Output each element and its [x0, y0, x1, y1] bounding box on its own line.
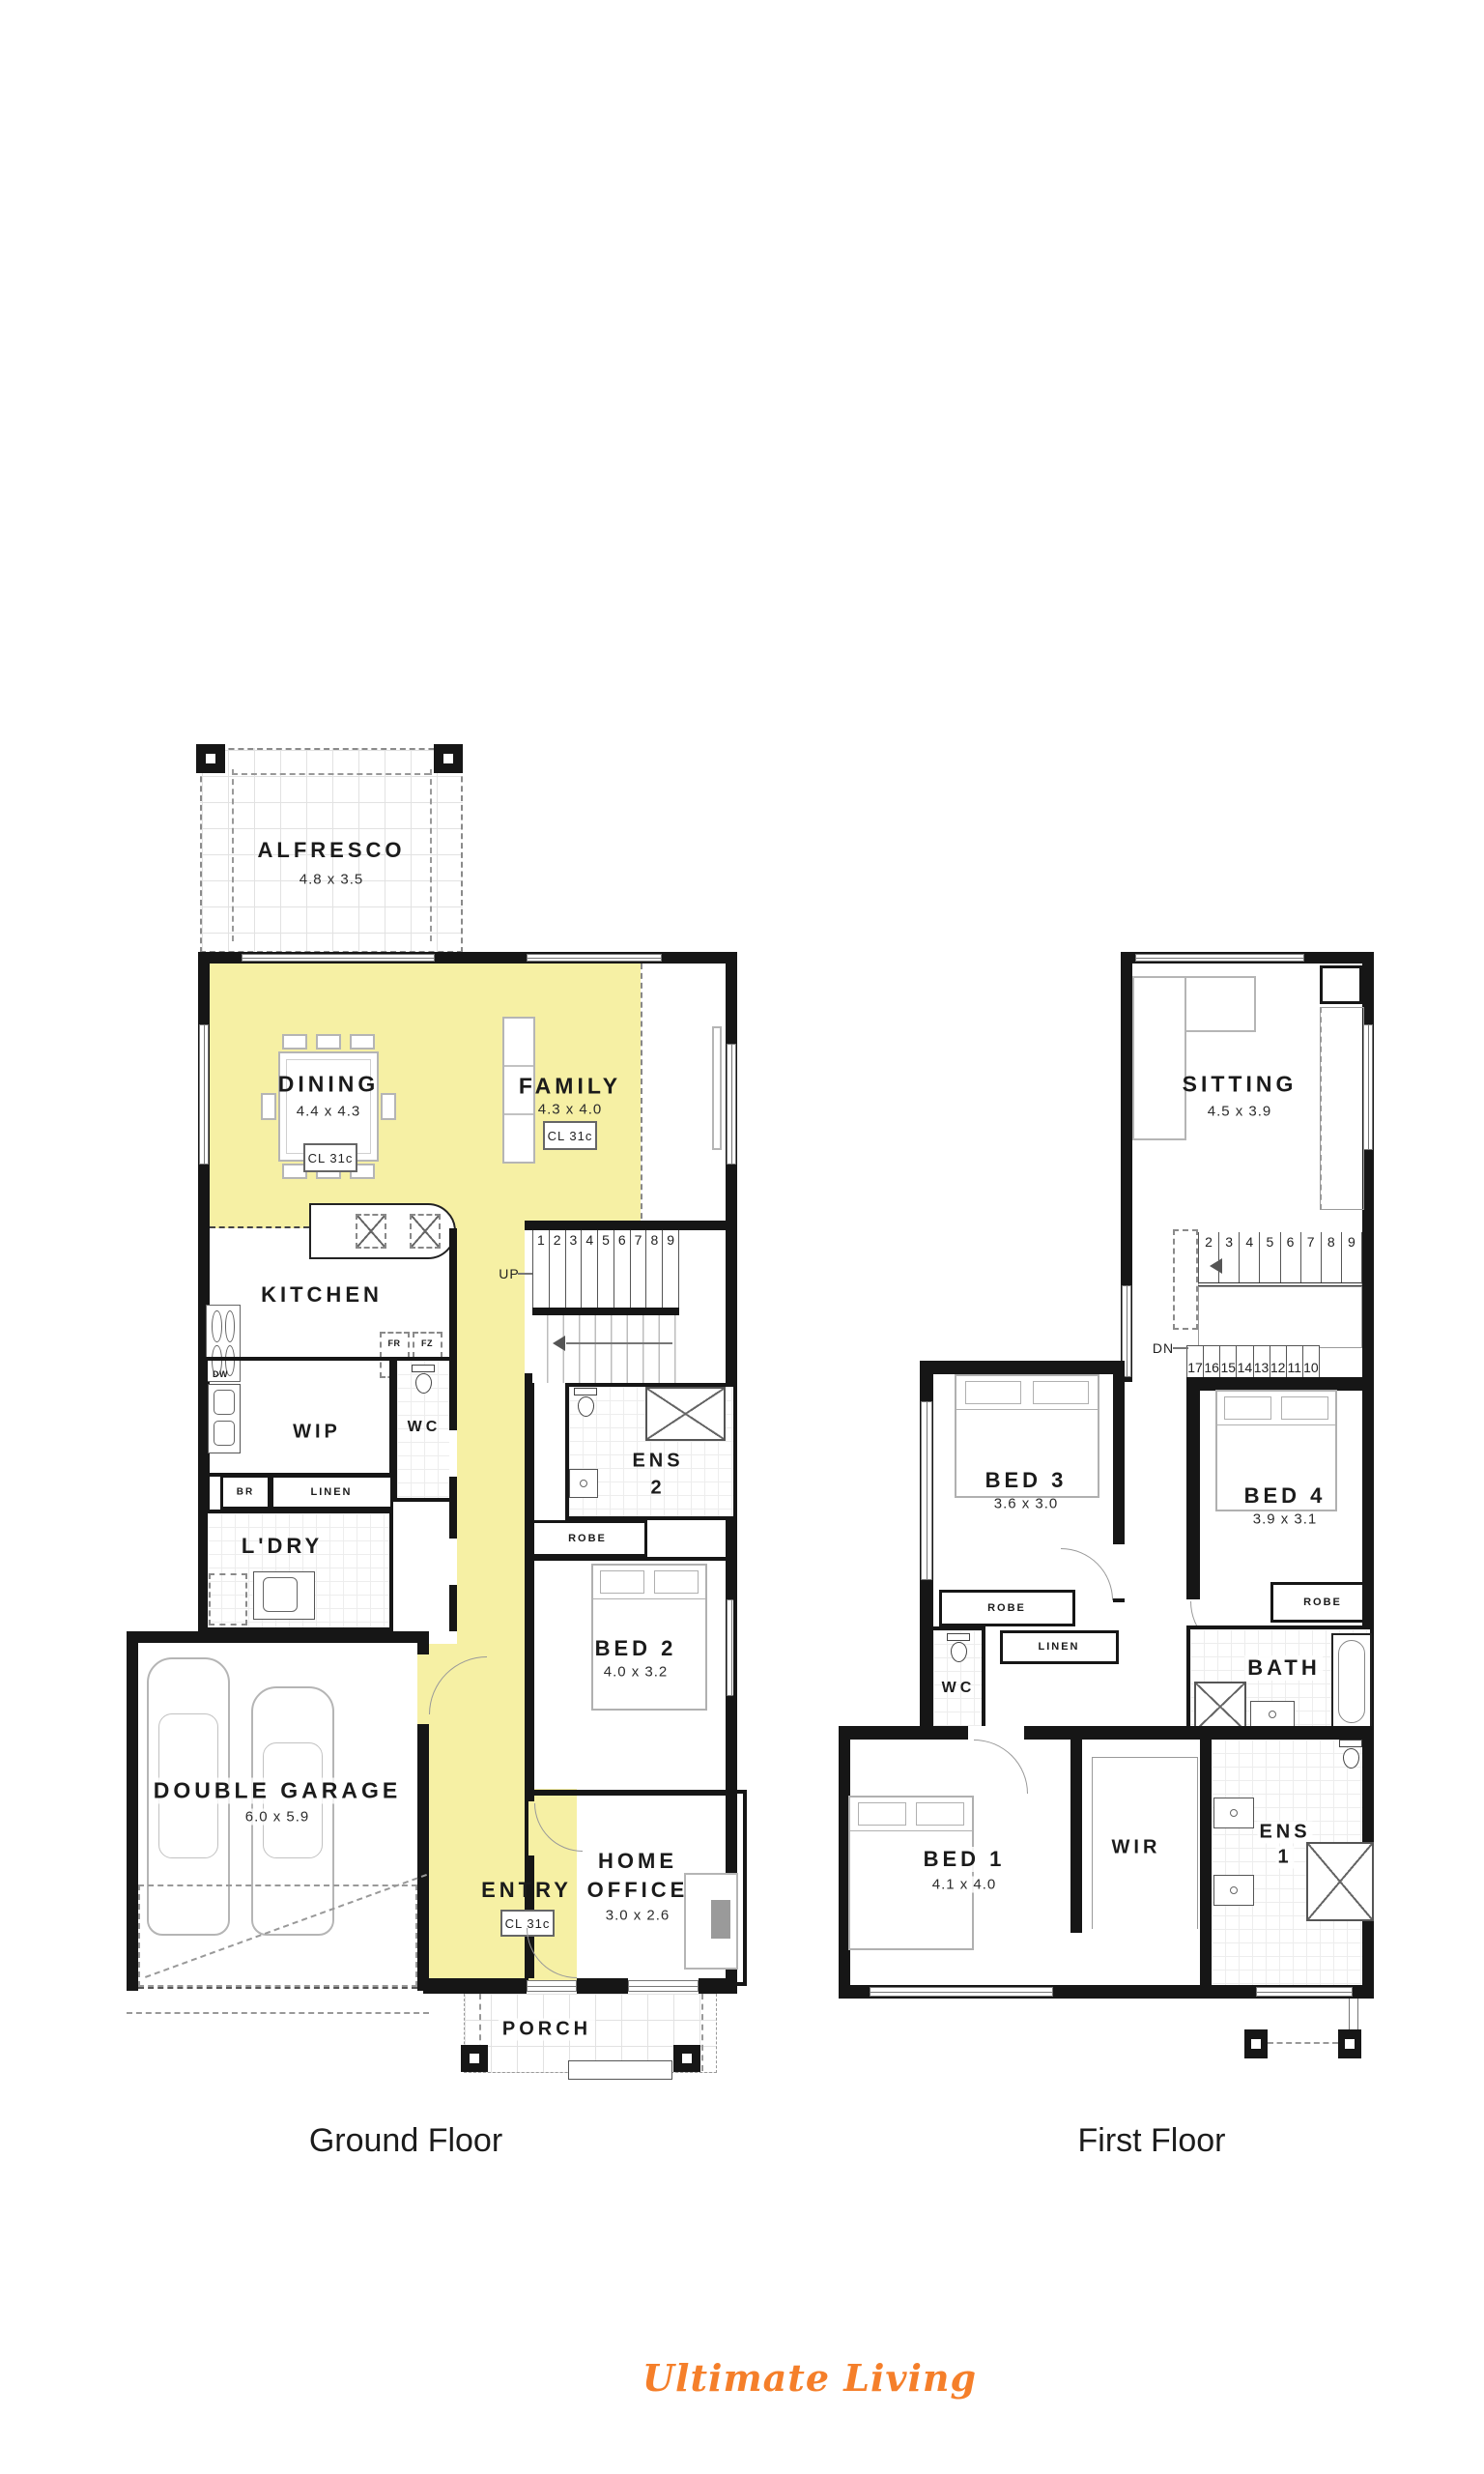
exterior-wall: [839, 1726, 931, 1740]
hall-highlight: [457, 1228, 525, 1644]
broom-label: BR: [237, 1487, 254, 1498]
cl-ceiling-badge: CL 31c: [303, 1143, 357, 1172]
first-floor-caption: First Floor: [1078, 2122, 1226, 2160]
stairwell-void-dash: [1173, 1229, 1198, 1330]
kitchen-label: KITCHEN: [261, 1282, 383, 1308]
chair-icon: [381, 1093, 396, 1120]
bathtub-icon: [1331, 1633, 1372, 1730]
bed2-label: BED 2: [595, 1636, 677, 1661]
stair-number: 4: [582, 1230, 598, 1308]
interior-wall: [1186, 1377, 1200, 1599]
shower-icon: [1194, 1682, 1246, 1732]
stair-number: 9: [1342, 1232, 1361, 1282]
alfresco-dims: 4.8 x 3.5: [300, 872, 364, 888]
wir-label: WIR: [1109, 1837, 1164, 1859]
stair-number: 11: [1287, 1346, 1303, 1377]
stair-number: 6: [1281, 1232, 1301, 1282]
stair-number: 6: [614, 1230, 631, 1308]
sitting-dims: 4.5 x 3.9: [1208, 1104, 1272, 1120]
wip-label: WIP: [293, 1422, 341, 1444]
porch-roof-post: [1338, 2029, 1361, 2058]
bed1-door-arc: [974, 1740, 1028, 1794]
stair-number: 5: [598, 1230, 614, 1308]
exterior-wall: [699, 1978, 737, 1994]
stairs-first-lower: 17 16 15 14 13 12 11 10: [1186, 1345, 1320, 1377]
interior-wall: [1186, 1377, 1374, 1391]
dining-label: DINING: [278, 1072, 380, 1098]
downpipe-lines: [1349, 1999, 1358, 2029]
freezer-label: FZ: [421, 1338, 433, 1348]
garage-opening-dash: [138, 1987, 417, 1989]
kitchen-boundary-dash: [210, 1226, 309, 1228]
monitor-icon: [711, 1900, 730, 1939]
robe-label: ROBE: [987, 1602, 1026, 1614]
bed1-dims: 4.1 x 4.0: [929, 1877, 1000, 1893]
stair-landing-wall: [532, 1308, 679, 1315]
stair-number: 5: [1260, 1232, 1280, 1282]
window: [242, 954, 435, 962]
sitting-robe: [1320, 1007, 1364, 1210]
stair-number: 9: [663, 1230, 678, 1308]
sink-bowl: [214, 1421, 235, 1446]
stair-number: 17: [1187, 1346, 1204, 1377]
ens1-label: ENS: [1257, 1822, 1312, 1844]
tv-icon: [712, 1026, 722, 1150]
stair-number: 7: [1301, 1232, 1322, 1282]
basin-icon: [1250, 1701, 1295, 1728]
basin-icon: [1213, 1798, 1254, 1828]
bath-label: BATH: [1244, 1655, 1323, 1681]
family-dims: 4.3 x 4.0: [538, 1102, 603, 1118]
bed4-label: BED 4: [1244, 1483, 1327, 1509]
home-office-dims: 3.0 x 2.6: [606, 1908, 671, 1924]
laundry-label: L'DRY: [242, 1534, 323, 1559]
stairs-up-label: UP: [499, 1266, 519, 1281]
porch-post: [673, 2045, 700, 2072]
chair-icon: [350, 1034, 375, 1050]
dishwasher-label: DW: [213, 1369, 228, 1379]
island-sink-icon: [410, 1214, 441, 1249]
robe-label: ROBE: [1303, 1597, 1342, 1608]
linen-label: LINEN: [1039, 1641, 1080, 1653]
chair-icon: [261, 1093, 276, 1120]
stair-number: 13: [1254, 1346, 1270, 1377]
entry-door-sill: [527, 1980, 577, 1992]
window: [921, 1401, 932, 1580]
wc-label: WC: [408, 1419, 442, 1436]
sofa-icon: [1132, 976, 1186, 1140]
window: [628, 1980, 699, 1992]
shower-icon: [1306, 1842, 1374, 1921]
porch-dash: [701, 1994, 703, 2071]
family-label: FAMILY: [519, 1074, 621, 1100]
garage-left-wall: [127, 1631, 138, 1991]
porch-step: [568, 2060, 672, 2080]
island-sink-icon: [356, 1214, 386, 1249]
window: [1135, 954, 1304, 962]
ground-floor-caption: Ground Floor: [309, 2122, 502, 2160]
sink-bowl: [214, 1390, 235, 1415]
ens2-label-2: 2: [650, 1478, 665, 1500]
up-leader-line: [518, 1273, 532, 1275]
driveway-dash: [127, 2012, 429, 2014]
stair-number: 2: [1199, 1232, 1219, 1282]
stairs-first-upper: 2 3 4 5 6 7 8 9: [1198, 1232, 1362, 1286]
home-office-label: HOME: [598, 1849, 677, 1874]
stair-number: 3: [566, 1230, 583, 1308]
sofa-cushion-line: [504, 1113, 533, 1115]
sitting-label: SITTING: [1183, 1072, 1298, 1098]
bed4-dims: 3.9 x 3.1: [1253, 1511, 1318, 1528]
stair-number: 7: [631, 1230, 647, 1308]
alfresco-roof-line: [232, 769, 234, 941]
door-gap: [1113, 1544, 1125, 1598]
toilet-icon: [572, 1388, 599, 1417]
door-gap: [968, 1726, 1024, 1740]
window: [1256, 1987, 1353, 1997]
toilet-icon: [945, 1633, 972, 1662]
garage-label: DOUBLE GARAGE: [150, 1778, 405, 1804]
sitting-robe-dash: [1320, 1007, 1322, 1210]
alfresco-roof-line: [232, 773, 430, 775]
interior-wall: [920, 1361, 1125, 1374]
stair-number: 16: [1204, 1346, 1220, 1377]
stair-landing-outline: [1198, 1286, 1362, 1348]
stair-number: 3: [1219, 1232, 1240, 1282]
window: [1363, 1024, 1373, 1150]
stair-number: 10: [1303, 1346, 1319, 1377]
vanity-pier: [1200, 1834, 1212, 1873]
stair-arrow-head: [1210, 1258, 1222, 1274]
sitting-closet: [1320, 965, 1362, 1004]
trough-bowl: [263, 1577, 298, 1612]
sofa-cushion-line: [504, 1065, 533, 1067]
window: [527, 954, 662, 962]
chair-icon: [316, 1034, 341, 1050]
stair-number: 8: [1322, 1232, 1342, 1282]
chair-icon: [282, 1034, 307, 1050]
interior-wall: [1070, 1740, 1082, 1933]
stair-arrow-head: [553, 1336, 565, 1351]
porch-label: PORCH: [499, 2019, 595, 2041]
garage-top-wall: [127, 1631, 429, 1643]
bed-icon: [848, 1796, 974, 1950]
linen-label: LINEN: [311, 1486, 353, 1498]
garage-apron-dash: [138, 1884, 417, 1987]
toilet-icon: [410, 1365, 437, 1394]
floor-plan-canvas: ALFRESCO 4.8 x 3.5 DINING 4.4 x 4.3 CL 3…: [0, 0, 1484, 2474]
bed2-dims: 4.0 x 3.2: [604, 1664, 669, 1681]
window: [870, 1987, 1053, 1997]
garage-door-gap: [417, 1654, 429, 1724]
shower-icon: [645, 1387, 726, 1441]
alfresco-label: ALFRESCO: [258, 838, 406, 863]
ens1-label-2: 1: [1275, 1847, 1294, 1869]
door-gap: [449, 1430, 457, 1477]
appliance-space: [209, 1573, 247, 1625]
balustrade-dash: [1268, 2042, 1338, 2044]
dn-leader-line: [1173, 1347, 1188, 1349]
stairs-ground: 1 2 3 4 5 6 7 8 9: [532, 1230, 679, 1308]
ff-wc-label: WC: [942, 1680, 976, 1697]
toilet-icon: [1337, 1740, 1364, 1769]
stair-arrow-line: [566, 1342, 672, 1344]
basin-icon: [569, 1469, 598, 1498]
stairs-top-wall: [525, 1221, 737, 1230]
bed3-dims: 3.6 x 3.0: [994, 1496, 1059, 1512]
ultimate-living-logo: Ultimate Living: [642, 2356, 977, 2400]
ens2-label: ENS: [632, 1451, 683, 1473]
stair-number: 8: [646, 1230, 663, 1308]
dining-dims: 4.4 x 4.3: [297, 1104, 361, 1120]
robe-label: ROBE: [568, 1533, 607, 1544]
alfresco-post: [434, 744, 463, 773]
porch-post: [461, 2045, 488, 2072]
porch-roof-post: [1244, 2029, 1268, 2058]
bed3-label: BED 3: [985, 1468, 1068, 1493]
home-office-label-2: OFFICE: [587, 1878, 689, 1903]
alfresco-roof-line: [430, 769, 432, 941]
fridge-label: FR: [388, 1338, 401, 1348]
basin-icon: [1213, 1875, 1254, 1906]
exterior-wall: [423, 1978, 527, 1994]
stair-number: 12: [1270, 1346, 1287, 1377]
stair-number: 2: [550, 1230, 566, 1308]
door-gap: [449, 1539, 457, 1585]
stairs-dn-label: DN: [1153, 1340, 1174, 1356]
stair-number: 4: [1240, 1232, 1260, 1282]
stair-number: 14: [1237, 1346, 1253, 1377]
window: [199, 1024, 209, 1165]
entry-label: ENTRY: [481, 1878, 572, 1903]
stair-number: 15: [1220, 1346, 1237, 1377]
cl-ceiling-badge: CL 31c: [543, 1121, 597, 1150]
window: [727, 1044, 736, 1165]
alfresco-post: [196, 744, 225, 773]
bed1-label: BED 1: [921, 1847, 1009, 1872]
stair-number: 1: [533, 1230, 550, 1308]
garage-dims: 6.0 x 5.9: [242, 1809, 314, 1826]
exterior-wall: [577, 1978, 628, 1994]
